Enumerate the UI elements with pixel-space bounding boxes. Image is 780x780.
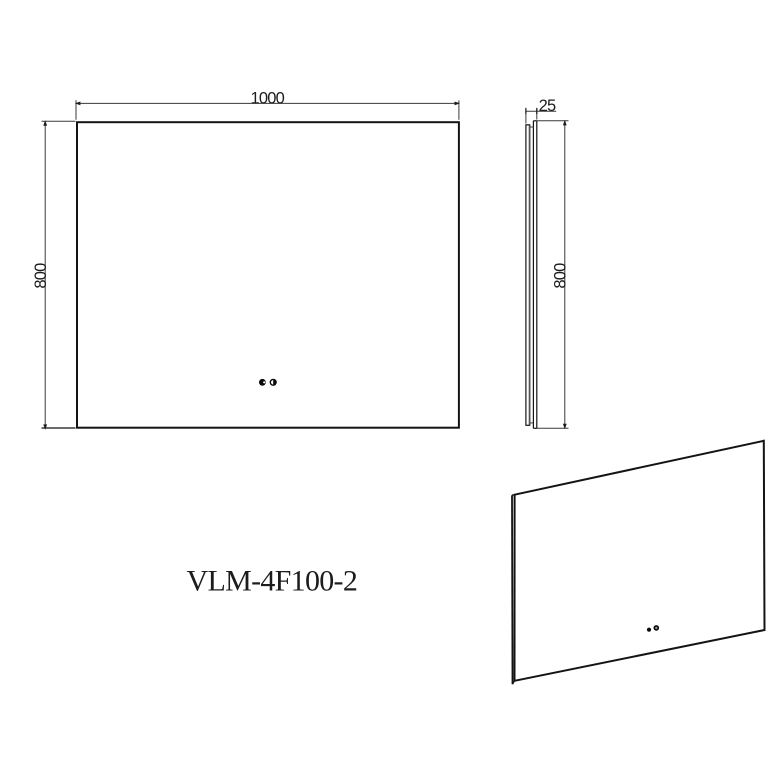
svg-text:VLM-4F100-2: VLM-4F100-2 [187, 564, 358, 597]
svg-text:800: 800 [32, 263, 50, 289]
svg-text:1000: 1000 [251, 90, 285, 108]
svg-text:800: 800 [552, 263, 570, 289]
svg-text:25: 25 [539, 97, 556, 115]
